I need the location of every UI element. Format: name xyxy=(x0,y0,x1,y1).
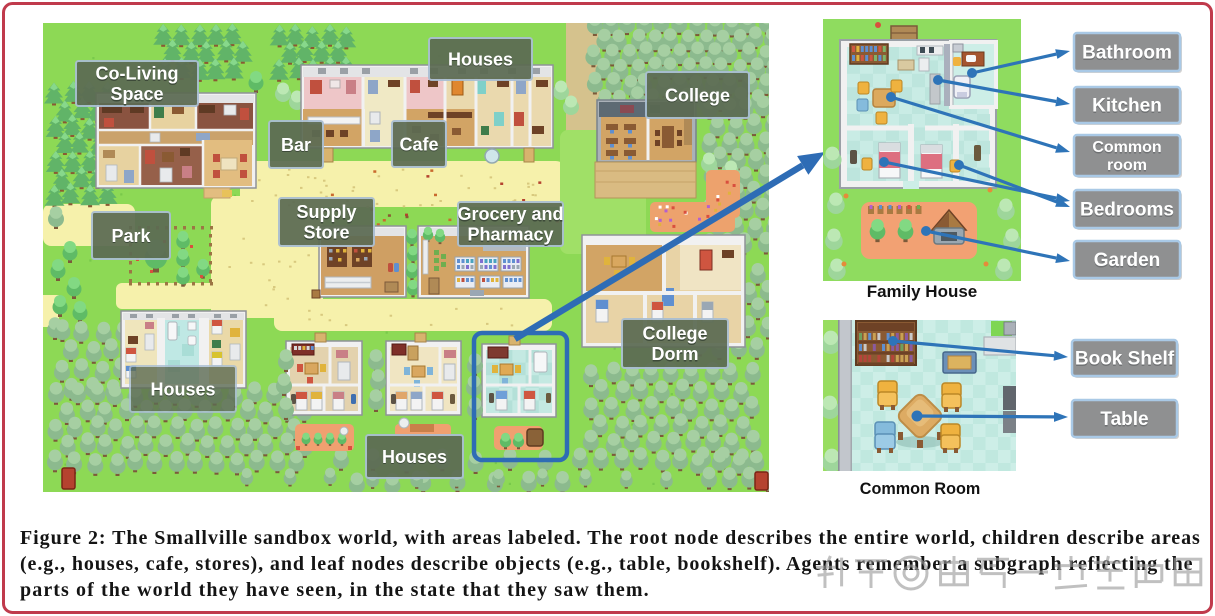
svg-text:Cafe: Cafe xyxy=(399,134,438,154)
svg-text:Houses: Houses xyxy=(448,49,513,69)
svg-text:Grocery and: Grocery and xyxy=(457,204,563,224)
svg-text:Common: Common xyxy=(1092,139,1161,156)
svg-text:College: College xyxy=(665,85,730,105)
svg-text:Family House: Family House xyxy=(867,282,978,301)
svg-text:Table: Table xyxy=(1100,409,1148,430)
svg-text:Pharmacy: Pharmacy xyxy=(467,225,553,245)
svg-text:Dorm: Dorm xyxy=(651,344,698,364)
svg-text:Book Shelf: Book Shelf xyxy=(1075,349,1175,370)
svg-text:Space: Space xyxy=(110,84,163,104)
svg-text:Store: Store xyxy=(303,223,349,243)
svg-text:Bedrooms: Bedrooms xyxy=(1080,200,1174,221)
svg-text:room: room xyxy=(1107,157,1147,174)
svg-text:Park: Park xyxy=(111,226,151,246)
svg-text:Figure 2: The Smallville sandb: Figure 2: The Smallville sandbox world, … xyxy=(20,527,1201,549)
svg-text:Bar: Bar xyxy=(281,135,311,155)
svg-text:Garden: Garden xyxy=(1094,250,1161,271)
svg-text:parts of the world they have s: parts of the world they have seen, in th… xyxy=(20,579,650,601)
svg-text:Co-Living: Co-Living xyxy=(96,64,179,84)
svg-text:Common Room: Common Room xyxy=(860,480,981,498)
svg-text:Houses: Houses xyxy=(150,379,215,399)
svg-text:Supply: Supply xyxy=(296,202,356,222)
svg-text:College: College xyxy=(642,324,707,344)
svg-text:Houses: Houses xyxy=(382,447,447,467)
svg-text:Bathroom: Bathroom xyxy=(1082,43,1172,64)
svg-text:Kitchen: Kitchen xyxy=(1092,96,1162,117)
